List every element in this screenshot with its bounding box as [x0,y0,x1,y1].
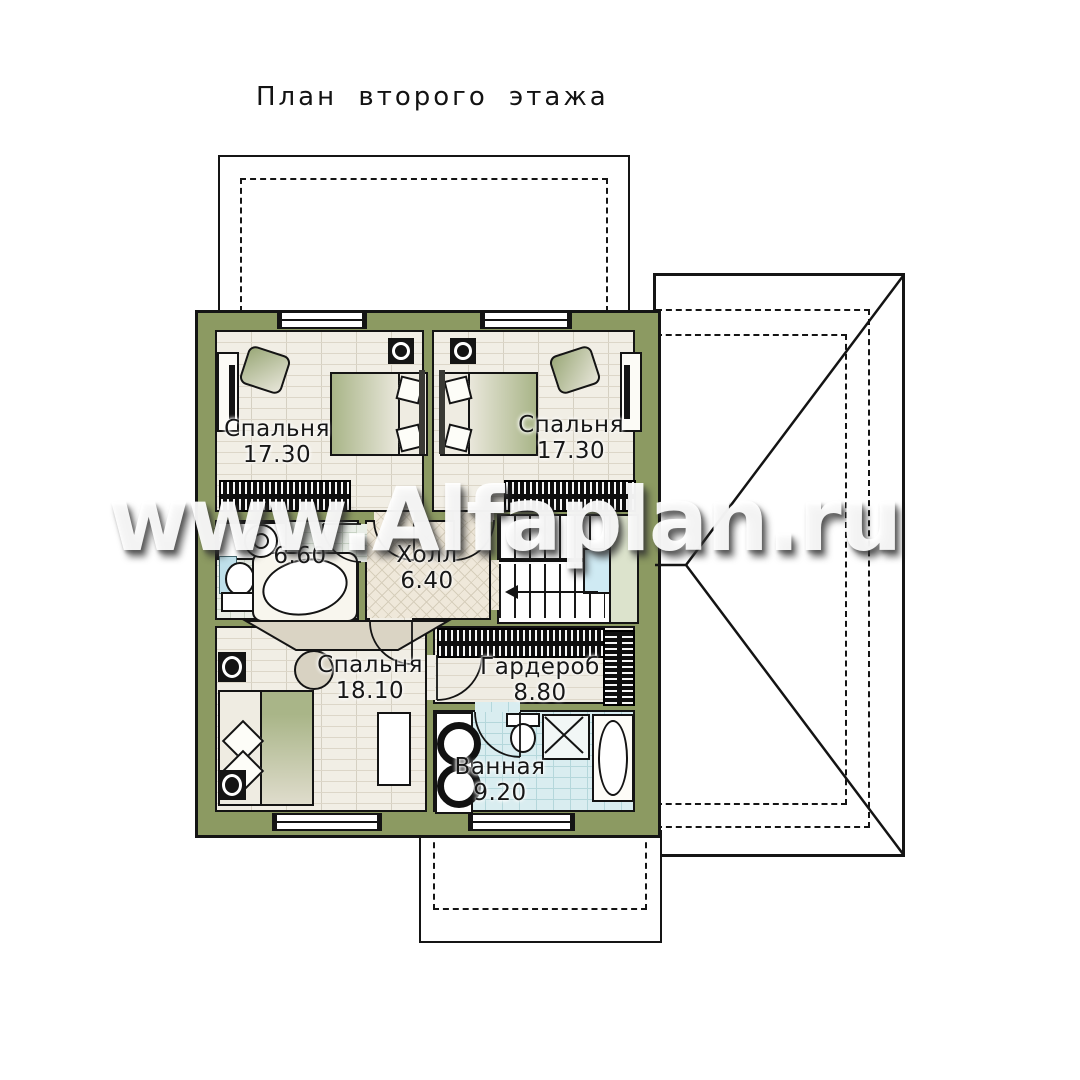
room-name: Спальня [224,416,330,442]
page-title: План второго этажа [256,82,609,112]
room-area: 17.30 [243,442,311,468]
watermark: www.Alfaplan.ru [108,468,900,571]
floor-plan-scene: План второго этажа [0,0,1080,1080]
upper-terrace-dashed-outline [240,178,608,312]
toilet-main-bowl [510,723,536,753]
nightstand-master-bottom [218,770,246,800]
label-bedroom-master: Спальня 18.10 [290,653,450,705]
bathtub-main [592,714,634,802]
bed-master-blanket [260,690,314,806]
window-bathroom [468,813,575,831]
window-bedroom-left [277,311,367,329]
dresser-master [377,712,411,786]
room-area: 9.20 [473,780,526,806]
window-bedroom-right [480,311,572,329]
room-name: Спальня [518,412,624,438]
label-wardrobe: Гардероб 8.80 [460,655,620,707]
nightstand-right [450,338,476,364]
bed-left-headboard [419,370,425,454]
window-bedroom-master [272,813,382,831]
room-area: 18.10 [336,678,404,704]
nightstand-master-top [218,652,246,682]
room-name: Ванная [455,754,546,780]
label-bedroom-left: Спальня 17.30 [197,417,357,469]
label-bathroom: Ванная 9.20 [420,755,580,807]
room-area: 6.40 [400,568,453,594]
label-bedroom-right: Спальня 17.30 [491,413,651,465]
shower-cabin [542,714,590,760]
door-gap-bedroom-master [370,618,412,628]
room-name: Спальня [317,652,423,678]
room-name: Гардероб [480,654,600,680]
room-area: 8.80 [513,680,566,706]
bed-right-headboard [439,370,445,454]
nightstand-left [388,338,414,364]
room-area: 17.30 [537,438,605,464]
lower-terrace-dashed-outline [433,832,647,910]
